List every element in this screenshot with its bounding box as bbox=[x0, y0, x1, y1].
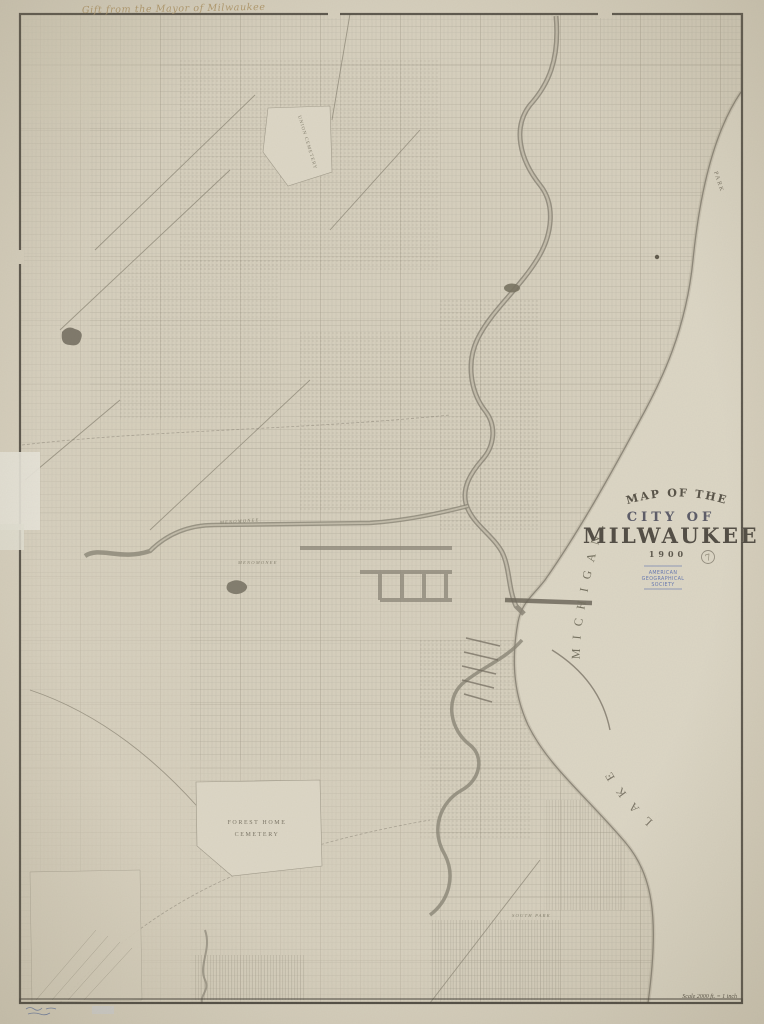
vignette-shading bbox=[0, 0, 764, 1024]
milwaukee-map-1900: LAKE MICHIGAN. PARK UNION CEMETERY FORES… bbox=[0, 0, 764, 1024]
scanned-map-sheet: LAKE MICHIGAN. PARK UNION CEMETERY FORES… bbox=[0, 0, 764, 1024]
